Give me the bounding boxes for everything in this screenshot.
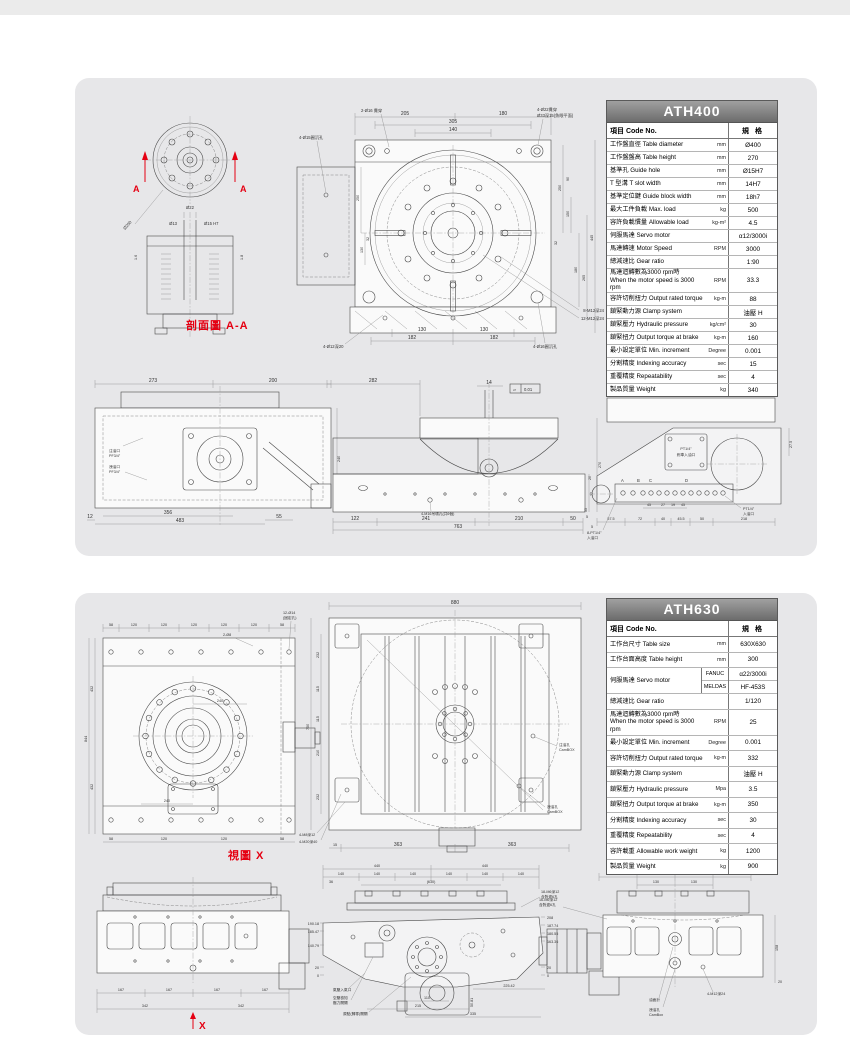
section-mark-a-right: A (240, 184, 247, 194)
front-dims (97, 989, 289, 1013)
x-arrow-label: X (199, 1021, 206, 1032)
sub-label: FANUC (702, 668, 728, 680)
dim-275: 27.5 (789, 441, 793, 448)
callout-2d8: 2-Ø8 (223, 633, 231, 637)
ath630-top-view-drawing: 880 750 232 115 115 210 232 363 363 15 4… (297, 596, 605, 854)
row-value: 300 (728, 653, 777, 668)
row-unit: sec (703, 817, 728, 823)
oil-drain-size: PF3/4" (109, 470, 121, 474)
row-label: 容許負載慣量 Allowable load (607, 219, 703, 226)
dim-356: 356 (164, 510, 173, 516)
dim-18: 1.8 (240, 255, 244, 260)
dims-140b: 140 (374, 872, 380, 876)
dim-14: 14 (486, 380, 492, 386)
callout-oil-fill-sub: CamBOX (559, 748, 575, 752)
side-body (333, 382, 585, 526)
callout-16m6-sub: 含對邊6孔 (539, 902, 556, 907)
row-unit: Degree (703, 740, 728, 746)
row-value: 15 (728, 358, 777, 370)
dims-22542: 225.42 (503, 984, 514, 988)
row-label: 馬達迴轉數為3000 rpm時When the motor speed is 3… (607, 269, 703, 291)
row-value: 3.5 (728, 782, 777, 797)
row-value: 4 (728, 829, 777, 844)
row-value: 25 (728, 710, 777, 735)
row-label: 重覆精度 Repeatability (607, 832, 703, 839)
dims-335: 335 (470, 1012, 476, 1016)
callout-4m8: 4-M8深12 (299, 832, 315, 837)
row-unit: kg (703, 864, 728, 870)
row-label: 馬達轉速 Motor Speed (607, 245, 703, 252)
row-label: 製品質量 Weight (607, 386, 703, 393)
row-value: 1:90 (728, 256, 777, 268)
dim-305: 305 (449, 119, 458, 125)
ath630-column-header: 項目 Code No. 規 格 (607, 621, 777, 637)
row-label: 總減速比 Gear ratio (607, 698, 703, 705)
dim-232a: 232 (316, 652, 320, 658)
dims-630: (630) (427, 880, 436, 884)
oil-inlet-label: 注油口 (109, 448, 120, 453)
dim-right-150: 150 (566, 211, 570, 217)
dim-40: 40 (661, 517, 665, 521)
dimr-158: 158 (775, 945, 779, 951)
ath630-table-body: 工作台尺寸 Table sizemm630X630工作台面高度 Table he… (607, 637, 777, 874)
row-value: 18h7 (728, 191, 777, 203)
row-label: 最小設定單位 Min. increment (607, 347, 703, 354)
callout-oil-fill: 注油孔 (559, 742, 570, 747)
table-row: 鎖緊扭力 Output torque at brakekg-m160 (607, 331, 777, 344)
dim-241: 241 (422, 516, 431, 522)
table-row: 最小設定單位 Min. incrementDegree0.001 (607, 344, 777, 357)
dim-d15h7: Ø15 H7 (204, 221, 219, 226)
row-label: 重覆精度 Repeatability (607, 373, 703, 380)
callout-4xd16: 4-Ø16圓沉孔 (533, 343, 558, 350)
dimx-844: 844 (84, 736, 88, 742)
sub-label: MELDAS (702, 680, 728, 693)
dim-72: 72 (638, 517, 642, 521)
row-value: α22/3000i (729, 668, 777, 680)
dim-left-32: 32 (366, 237, 370, 241)
row-value: 14H7 (728, 178, 777, 190)
viewx-body (103, 638, 320, 834)
dim-bot-182a: 182 (408, 335, 417, 341)
front-body (97, 877, 309, 989)
dim-750: 750 (306, 724, 310, 730)
callout-d33: Ø33深15(魚眼平面) (537, 112, 574, 119)
row-unit: kg-m (703, 802, 728, 808)
dim-left-250: 250 (356, 195, 360, 201)
col-spec-header: 規 格 (728, 123, 777, 138)
dim-455: 45.5 (677, 517, 684, 521)
table-row: 製品質量 Weightkg900 (607, 859, 777, 875)
row-values: α22/3000iHF-453S (728, 668, 777, 693)
dimf-342a: 342 (142, 1004, 148, 1008)
dim-50: 50 (700, 517, 704, 521)
row-label: 基準孔 Guide hole (607, 167, 703, 174)
dim-50: 50 (570, 516, 576, 522)
inlet8-label: 入油口 (587, 535, 598, 540)
dim-15: 15 (333, 843, 337, 847)
row-value: 油壓 H (728, 767, 777, 782)
dimx-120f: 120 (161, 837, 167, 841)
inlet8-size: 8-PT1/4" (587, 531, 602, 535)
callout-4m20: 4-M20深40 (299, 839, 317, 844)
row-unit: mm (703, 181, 728, 187)
brake-port-size: PT1/4" (680, 447, 692, 451)
row-label: 伺服馬達 Servo motor (607, 677, 701, 684)
row-unit: RPM (703, 278, 728, 284)
table-row: 伺服馬達 Servo motorFANUCMELDASα22/3000iHF-4… (607, 667, 777, 693)
row-subcolumn: FANUCMELDAS (701, 668, 728, 693)
row-label: 製品質量 Weight (607, 863, 703, 870)
table-row: 分割精度 Indexing accuracysec30 (607, 812, 777, 828)
inlet-label: 入油口 (743, 511, 754, 516)
callout-drain-sub: CamBox (649, 1013, 663, 1017)
dimf-167b: 167 (166, 988, 172, 992)
row-label: 鎖緊扭力 Output torque at brake (607, 334, 703, 341)
callout-pressure-switch-sub: 壓力開關 (333, 1000, 348, 1005)
callout-4xd12: 4-Ø12深20 (323, 343, 344, 350)
row-unit: kg/cm² (703, 322, 728, 328)
row-value: 4 (728, 371, 777, 383)
table-row: 工作台面高度 Table heightmm300 (607, 652, 777, 668)
row-unit: kg-m (703, 755, 728, 761)
ath400-table-body: 工作盤直徑 Table diametermmØ400工作盤盤高 Table he… (607, 139, 777, 396)
row-label: 容許切削扭力 Output rated torque (607, 295, 703, 302)
dimf-167c: 167 (214, 988, 220, 992)
table-row: 分割精度 Indexing accuracysec15 (607, 357, 777, 370)
table-row: 鎖緊動力源 Clamp system油壓 H (607, 766, 777, 782)
port-c: C (649, 478, 652, 483)
ath630-front-view-drawing: 167 167 167 167 342 342 X (83, 871, 311, 1033)
dim-218: 218 (741, 517, 747, 521)
row-label: 容許載重 Allowable work weight (607, 848, 703, 855)
row-unit: Mpa (703, 786, 728, 792)
dim-right-265: 265 (582, 275, 586, 281)
ath630-side-view-drawing: 440 440 140 140 140 140 140 140 (630) 36… (307, 861, 557, 1033)
section-view-label: 剖面圖 A-A (186, 317, 249, 333)
table-row: 總減速比 Gear ratio1/120 (607, 693, 777, 709)
table-row: 工作台尺寸 Table sizemm630X630 (607, 637, 777, 652)
callout-12d14-sub: (固定孔) (283, 615, 297, 620)
dimf-167d: 167 (262, 988, 268, 992)
oil-inlet-size: PF3/4" (109, 454, 121, 458)
top-body (329, 610, 581, 852)
dimx-58c: 58 (109, 837, 113, 841)
dims-140e: 140 (482, 872, 488, 876)
dims-140c: 140 (410, 872, 416, 876)
dimf-342b: 342 (238, 1004, 244, 1008)
dim-right-180: 180 (574, 267, 578, 273)
table-row: 鎖緊扭力 Output torque at brakekg-m350 (607, 797, 777, 813)
row-unit: mm (703, 142, 728, 148)
dimx-240a: 240 (217, 699, 223, 703)
callout-12m12: 12-M12深24 (581, 315, 605, 322)
callout-16m6: 16-M6深12 (539, 897, 557, 902)
dimx-120d: 120 (221, 623, 227, 627)
dim-45a: 45 (647, 503, 651, 507)
row-label: 伺服馬達 Servo motor (607, 232, 703, 239)
dim-d22: Ø22 (186, 205, 195, 210)
row-label: 總減速比 Gear ratio (607, 258, 703, 265)
row-label: T 型溝 T slot width (607, 180, 703, 187)
row-label: 鎖緊壓力 Hydraulic pressure (607, 321, 703, 328)
table-row: 最大工件負載 Max. loadkg500 (607, 203, 777, 216)
dimx-58a: 58 (109, 623, 113, 627)
dimx-120a: 120 (131, 623, 137, 627)
dim-right-445: 445 (590, 235, 594, 241)
row-label: 工作盤直徑 Table diameter (607, 141, 703, 148)
port-b: B (637, 478, 640, 483)
ath630-viewx-drawing: 58 120 120 120 120 120 58 58 120 120 58 … (85, 608, 320, 848)
dimx-240b: 240 (164, 799, 170, 803)
viewx-label: 視圖 X (228, 847, 264, 863)
table-row: 工作盤盤高 Table heightmm270 (607, 151, 777, 164)
row-value: 630X630 (728, 637, 777, 652)
callout-oil-drain: 洩油孔 (547, 804, 558, 809)
row-value: 500 (728, 204, 777, 216)
row-unit: mm (703, 657, 728, 663)
dimx-120c: 120 (191, 623, 197, 627)
lifting-holes-callout: 4-M16吊環孔(共6個) (421, 511, 454, 516)
dim-363a: 363 (394, 842, 403, 848)
row-value: 1/120 (728, 694, 777, 709)
dimx-120b: 120 (161, 623, 167, 627)
ath400-top-view-drawing: 205 180 305 140 2-Ø16 貫穿 4-Ø15圓沉孔 4-Ø22貫… (295, 105, 605, 353)
callout-oil-gauge: 油面計 (649, 997, 660, 1002)
row-unit: mm (703, 194, 728, 200)
table-row: 基準定位鍵 Guide block widthmm18h7 (607, 190, 777, 203)
dim-27: 27 (661, 503, 665, 507)
ath630-spec-table: ATH630 項目 Code No. 規 格 工作台尺寸 Table sizem… (606, 598, 778, 875)
row-label: 工作台面高度 Table height (607, 656, 703, 663)
dim-122: 122 (351, 516, 360, 522)
dim-5e: 5 (591, 525, 593, 529)
dimx-120e: 120 (251, 623, 257, 627)
callout-pressure-switch: 空壓檢知 (333, 995, 348, 1000)
flatness-symbol: ▱ (513, 387, 517, 392)
table-row: 總減速比 Gear ratio1:90 (607, 255, 777, 268)
dims-14079: 140.79 (308, 944, 319, 948)
side630-body (323, 891, 543, 1015)
dims-140f: 140 (518, 872, 524, 876)
table-row: 容許載重 Allowable work weightkg1200 (607, 843, 777, 859)
row-value: Ø400 (728, 139, 777, 151)
ath630-table-title: ATH630 (607, 599, 777, 621)
dim-right-90: 90 (566, 177, 570, 181)
col-item-header: 項目 Code No. (607, 624, 728, 634)
dims-440a: 440 (374, 864, 380, 868)
dimx-120g: 120 (221, 837, 227, 841)
dims-l20: 20 (315, 966, 319, 970)
callout-4m12: 4-M12深24 (707, 991, 725, 996)
dim-232b: 232 (316, 794, 320, 800)
ath400-spec-table: ATH400 項目 Code No. 規 格 工作盤直徑 Table diame… (606, 100, 778, 397)
table-row: 伺服馬達 Servo motorα12/3000i (607, 229, 777, 242)
row-value: 350 (728, 798, 777, 813)
ath400-end-view-drawing: PT1/4" 剎車入油口 A B C D Ø400 45 27 19 45 57… (585, 376, 800, 544)
dims-215: 215 (415, 1004, 421, 1008)
dims-140a: 140 (338, 872, 344, 876)
dim-right-250: 250 (558, 185, 562, 191)
dim-282: 282 (369, 378, 378, 384)
row-unit: kg-m² (703, 220, 728, 226)
dims-36: 36 (329, 880, 333, 884)
dim-763: 763 (454, 524, 463, 530)
dimr-20: 20 (778, 980, 782, 984)
ath400-section-drawing: A A Ø200 Ø22 Ø13 Ø15 H7 1.6 1.8 (85, 108, 290, 343)
callout-4xd22: 4-Ø22貫穿 (537, 106, 557, 113)
oil-drain-label: 洩油口 (109, 464, 120, 469)
body (297, 140, 556, 333)
ath400-column-header: 項目 Code No. 規 格 (607, 123, 777, 139)
dimr-130a: 130 (653, 880, 659, 884)
table-row: 容許負載慣量 Allowable loadkg-m²4.5 (607, 216, 777, 229)
row-value: 1200 (728, 844, 777, 859)
row-value: 88 (728, 293, 777, 305)
row-value: 33.3 (728, 269, 777, 292)
rear-body (95, 386, 331, 526)
callout-air-inlet: 氣壓入氣口 (333, 987, 352, 992)
row-value: 30 (728, 319, 777, 331)
row-unit: kg (703, 387, 728, 393)
ath630-rear-view-drawing: 167 167 167 167 130 130 158 20 16-M6深12 … (537, 871, 787, 1033)
row-label: 最大工件負載 Max. load (607, 206, 703, 213)
table-row: 馬達迴轉數為3000 rpm時When the motor speed is 3… (607, 268, 777, 292)
col-spec-header: 規 格 (728, 621, 777, 636)
table-row: 工作盤直徑 Table diametermmØ400 (607, 139, 777, 151)
col-item-header: 項目 Code No. (607, 126, 728, 136)
flatness-value: 0.01 (524, 387, 533, 392)
row-unit: kg (703, 207, 728, 213)
end-body (589, 398, 781, 504)
row-unit: Degree (703, 348, 728, 354)
row-value: 900 (728, 860, 777, 875)
dims-110: 110 (424, 996, 430, 1000)
row-label: 分割精度 Indexing accuracy (607, 360, 703, 367)
dims-19018: 190.18 (308, 922, 319, 926)
row-value: Ø15H7 (728, 165, 777, 177)
x-direction-arrow: X (190, 1012, 206, 1032)
dim-bot-182b: 182 (490, 335, 499, 341)
dim-210: 210 (515, 516, 524, 522)
dims-l0: 0 (317, 974, 319, 978)
flange-top-view (135, 116, 235, 224)
row-value: 0.001 (728, 345, 777, 357)
row-value: 160 (728, 332, 777, 344)
row-value: 油壓 H (728, 306, 777, 318)
dim-55e: 55 (584, 508, 588, 512)
table-row: 容許切削扭力 Output rated torquekg-m332 (607, 750, 777, 766)
section-mark-a-left: A (133, 184, 140, 194)
dims-18547: 185.47 (308, 930, 319, 934)
dim-16: 1.6 (134, 255, 138, 260)
dim-363b: 363 (508, 842, 517, 848)
row-value: 4.5 (728, 217, 777, 229)
row-label: 基準定位鍵 Guide block width (607, 193, 703, 200)
row-unit: sec (703, 361, 728, 367)
row-label: 最小設定單位 Min. increment (607, 739, 703, 746)
row-unit: mm (703, 641, 728, 647)
dims-440b: 440 (482, 864, 488, 868)
port-a: A (621, 478, 624, 483)
row-label: 分割精度 Indexing accuracy (607, 817, 703, 824)
dim-bot-130a: 130 (418, 327, 427, 333)
dimr-130b: 130 (691, 880, 697, 884)
callout-drain: 洩油孔 (649, 1007, 660, 1012)
callout-2xd16: 2-Ø16 貫穿 (361, 107, 382, 114)
callout-oil-drain-sub: CamBOX (547, 810, 563, 814)
dim-d13: Ø13 (169, 221, 178, 226)
dim-180: 180 (499, 111, 508, 117)
table-row: T 型溝 T slot widthmm14H7 (607, 177, 777, 190)
table-row: 馬達迴轉數為3000 rpm時When the motor speed is 3… (607, 709, 777, 735)
row-label: 馬達迴轉數為3000 rpm時When the motor speed is 3… (607, 711, 703, 733)
callout-12d14: 12-Ø14 (283, 611, 295, 615)
dim-55: 55 (276, 514, 282, 520)
row-value: 270 (728, 152, 777, 164)
row-label: 鎖緊扭力 Output torque at brake (607, 801, 703, 808)
ath400-panel: A A Ø200 Ø22 Ø13 Ø15 H7 1.6 1.8 (75, 78, 817, 556)
table-row: 製品質量 Weightkg340 (607, 383, 777, 396)
dim-20: 20 (588, 476, 592, 480)
ath400-table-title: ATH400 (607, 101, 777, 123)
table-row: 容許切削扭力 Output rated torquekg-m88 (607, 292, 777, 305)
ath400-rear-view-drawing: 注油口 PF3/4" 洩油口 PF3/4" 273 200 240 356 48… (83, 376, 341, 538)
row-value: 340 (728, 384, 777, 396)
dim-45b: 45 (681, 503, 685, 507)
callout-4xd15: 4-Ø15圓沉孔 (299, 134, 324, 141)
row-value: 0.001 (728, 736, 777, 751)
row-label: 工作台尺寸 Table size (607, 641, 703, 648)
row-value: 332 (728, 751, 777, 766)
table-row: 基準孔 Guide holemmØ15H7 (607, 164, 777, 177)
table-row: 鎖緊壓力 Hydraulic pressurekg/cm²30 (607, 318, 777, 331)
dims-5081: 50.81 (470, 998, 474, 1007)
callout-8m12: 8-M12深24 (583, 307, 604, 314)
brake-port-label: 剎車入油口 (677, 452, 696, 457)
table-row: 重覆精度 Repeatabilitysec4 (607, 828, 777, 844)
row-value: 30 (728, 813, 777, 828)
inlet-size: PT1/4" (743, 507, 755, 511)
dim-273: 273 (149, 378, 158, 384)
row-unit: RPM (703, 719, 728, 725)
dimx-58b: 58 (280, 623, 284, 627)
dim-483: 483 (176, 518, 185, 524)
dimx-432b: 432 (90, 784, 94, 790)
ath630-panel: 58 120 120 120 120 120 58 58 120 120 58 … (75, 593, 817, 1035)
row-unit: RPM (703, 246, 728, 252)
port-d: D (685, 478, 688, 483)
row-value: α12/3000i (728, 230, 777, 242)
dims-140d: 140 (446, 872, 452, 876)
row-unit: kg-m (703, 296, 728, 302)
table-row: 鎖緊動力源 Clamp system油壓 H (607, 305, 777, 318)
dim-205: 205 (401, 111, 410, 117)
callout-origin-switch: 原點(歸零)開關 (343, 1011, 368, 1016)
dimx-432a: 432 (90, 686, 94, 692)
row-unit: sec (703, 374, 728, 380)
row-label: 鎖緊動力源 Clamp system (607, 308, 703, 315)
dimx-58d: 58 (280, 837, 284, 841)
dim-115a: 115 (316, 686, 320, 692)
flange-diameter-tag: Ø200 (122, 219, 133, 230)
dim-right-32: 32 (554, 241, 558, 245)
row-unit: mm (703, 155, 728, 161)
row-value: HF-453S (729, 680, 777, 693)
dim-880: 880 (451, 600, 460, 606)
table-row: 最小設定單位 Min. incrementDegree0.001 (607, 735, 777, 751)
dim-bot-130b: 130 (480, 327, 489, 333)
